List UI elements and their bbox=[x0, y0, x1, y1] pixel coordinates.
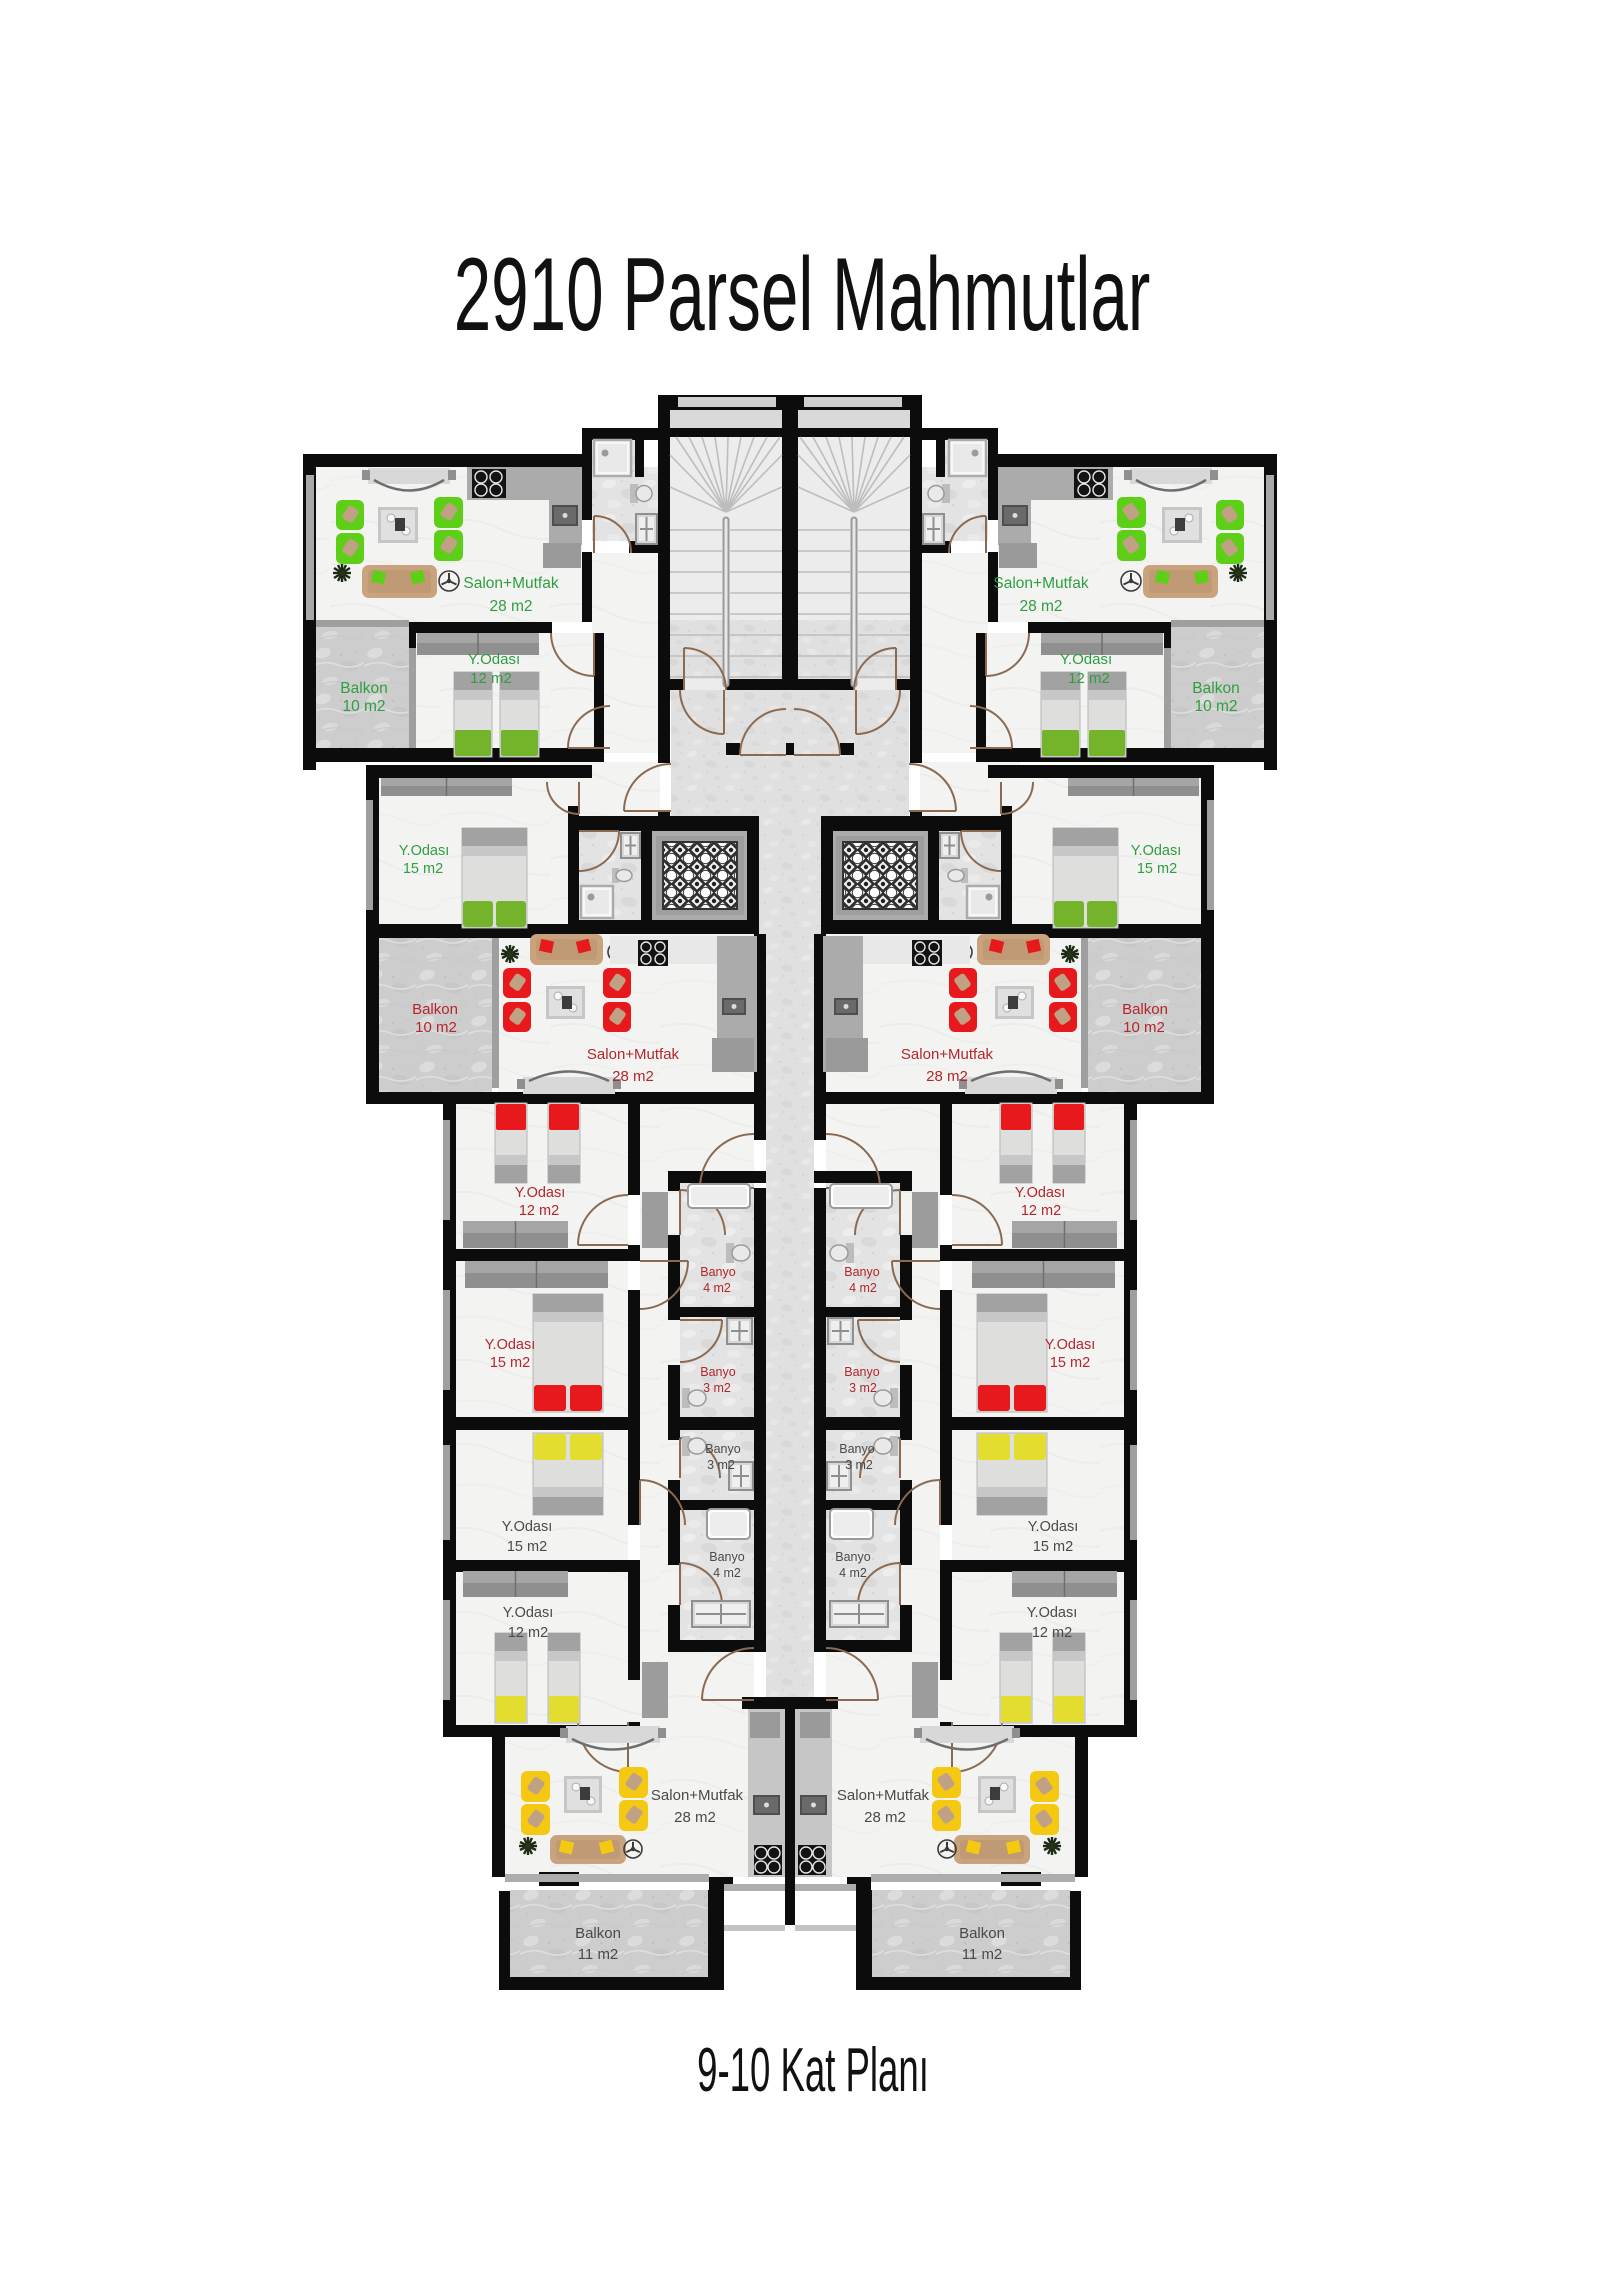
svg-text:Salon+Mutfak: Salon+Mutfak bbox=[901, 1046, 994, 1063]
svg-text:10 m2: 10 m2 bbox=[1123, 1019, 1165, 1036]
svg-text:12 m2: 12 m2 bbox=[508, 1625, 548, 1641]
svg-text:15 m2: 15 m2 bbox=[1137, 861, 1177, 877]
svg-text:12 m2: 12 m2 bbox=[1032, 1625, 1072, 1641]
svg-text:Y.Odası: Y.Odası bbox=[1045, 1337, 1096, 1353]
svg-text:Balkon: Balkon bbox=[412, 1001, 458, 1018]
svg-text:11 m2: 11 m2 bbox=[578, 1946, 619, 1963]
svg-text:15 m2: 15 m2 bbox=[403, 861, 443, 877]
svg-text:Salon+Mutfak: Salon+Mutfak bbox=[993, 575, 1088, 592]
svg-text:Y.Odası: Y.Odası bbox=[503, 1605, 554, 1621]
svg-text:4 m2: 4 m2 bbox=[849, 1281, 877, 1295]
svg-text:Banyo: Banyo bbox=[700, 1265, 735, 1279]
svg-text:Y.Odası: Y.Odası bbox=[1131, 843, 1182, 859]
svg-text:28 m2: 28 m2 bbox=[1019, 598, 1062, 615]
svg-text:Y.Odası: Y.Odası bbox=[485, 1337, 536, 1353]
svg-text:15 m2: 15 m2 bbox=[490, 1355, 530, 1371]
svg-text:Balkon: Balkon bbox=[1122, 1001, 1168, 1018]
svg-text:Balkon: Balkon bbox=[959, 1925, 1005, 1942]
svg-text:2910 Parsel Mahmutlar: 2910 Parsel Mahmutlar bbox=[454, 236, 1151, 352]
svg-text:3 m2: 3 m2 bbox=[703, 1381, 731, 1395]
svg-text:Y.Odası: Y.Odası bbox=[468, 651, 520, 668]
svg-text:Y.Odası: Y.Odası bbox=[515, 1185, 566, 1201]
svg-text:Salon+Mutfak: Salon+Mutfak bbox=[837, 1787, 930, 1804]
svg-text:28 m2: 28 m2 bbox=[674, 1809, 716, 1826]
svg-text:28 m2: 28 m2 bbox=[926, 1068, 968, 1085]
svg-text:4 m2: 4 m2 bbox=[703, 1281, 731, 1295]
svg-text:10 m2: 10 m2 bbox=[342, 698, 385, 715]
svg-text:Salon+Mutfak: Salon+Mutfak bbox=[587, 1046, 680, 1063]
svg-text:Banyo: Banyo bbox=[844, 1265, 879, 1279]
svg-text:12 m2: 12 m2 bbox=[519, 1203, 559, 1219]
svg-text:Banyo: Banyo bbox=[839, 1442, 874, 1456]
svg-text:15 m2: 15 m2 bbox=[1050, 1355, 1090, 1371]
svg-text:15 m2: 15 m2 bbox=[507, 1539, 547, 1555]
svg-text:10 m2: 10 m2 bbox=[1194, 698, 1237, 715]
svg-text:Salon+Mutfak: Salon+Mutfak bbox=[463, 575, 558, 592]
svg-text:Balkon: Balkon bbox=[340, 680, 387, 697]
svg-text:4 m2: 4 m2 bbox=[839, 1566, 867, 1580]
svg-text:Banyo: Banyo bbox=[709, 1550, 744, 1564]
svg-text:28 m2: 28 m2 bbox=[489, 598, 532, 615]
svg-text:Y.Odası: Y.Odası bbox=[399, 843, 450, 859]
svg-text:3 m2: 3 m2 bbox=[707, 1458, 735, 1472]
svg-text:Y.Odası: Y.Odası bbox=[1027, 1605, 1078, 1621]
svg-text:3 m2: 3 m2 bbox=[845, 1458, 873, 1472]
svg-text:Y.Odası: Y.Odası bbox=[502, 1519, 553, 1535]
svg-text:Banyo: Banyo bbox=[835, 1550, 870, 1564]
svg-text:3 m2: 3 m2 bbox=[849, 1381, 877, 1395]
svg-text:15 m2: 15 m2 bbox=[1033, 1539, 1073, 1555]
svg-text:4 m2: 4 m2 bbox=[713, 1566, 741, 1580]
svg-text:Banyo: Banyo bbox=[705, 1442, 740, 1456]
svg-text:Y.Odası: Y.Odası bbox=[1015, 1185, 1066, 1201]
svg-text:Y.Odası: Y.Odası bbox=[1028, 1519, 1079, 1535]
svg-text:28 m2: 28 m2 bbox=[612, 1068, 654, 1085]
svg-text:Salon+Mutfak: Salon+Mutfak bbox=[651, 1787, 744, 1804]
svg-text:Banyo: Banyo bbox=[700, 1365, 735, 1379]
svg-text:9-10 Kat Planı: 9-10 Kat Planı bbox=[697, 2035, 929, 2104]
svg-text:12 m2: 12 m2 bbox=[470, 670, 512, 687]
svg-text:Balkon: Balkon bbox=[1192, 680, 1239, 697]
svg-text:Balkon: Balkon bbox=[575, 1925, 621, 1942]
svg-text:12 m2: 12 m2 bbox=[1021, 1203, 1061, 1219]
svg-text:12 m2: 12 m2 bbox=[1068, 670, 1110, 687]
svg-text:Y.Odası: Y.Odası bbox=[1060, 651, 1112, 668]
svg-text:10 m2: 10 m2 bbox=[415, 1019, 457, 1036]
svg-text:28 m2: 28 m2 bbox=[864, 1809, 906, 1826]
svg-text:Banyo: Banyo bbox=[844, 1365, 879, 1379]
svg-text:11 m2: 11 m2 bbox=[962, 1946, 1003, 1963]
